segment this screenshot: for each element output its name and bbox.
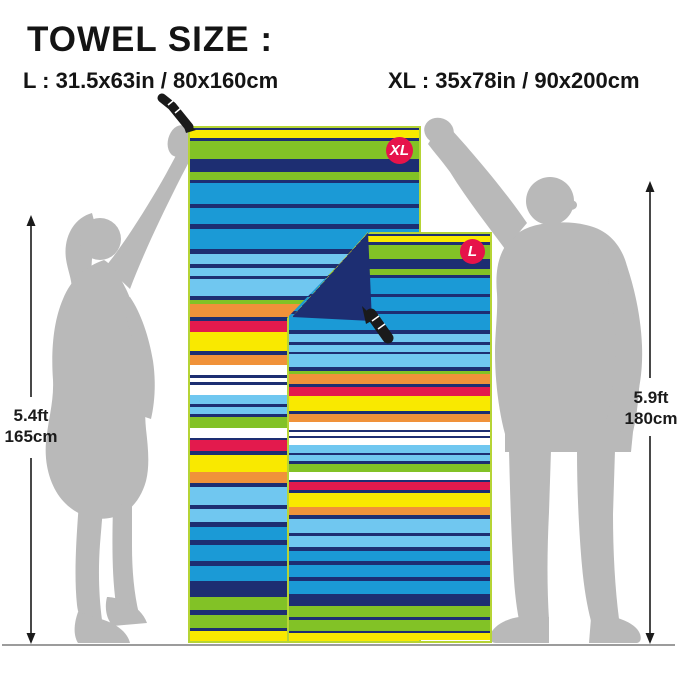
zipper-pull-icon bbox=[362, 306, 388, 338]
height-cm-right: 180cm bbox=[625, 408, 678, 429]
height-cm-left: 165cm bbox=[5, 426, 58, 447]
height-label-left: 5.4ft 165cm bbox=[1, 405, 61, 447]
height-feet-left: 5.4ft bbox=[14, 405, 49, 426]
hanging-strap-icon bbox=[162, 98, 196, 133]
height-label-right: 5.9ft 180cm bbox=[621, 387, 679, 429]
towel-size-infographic: TOWEL SIZE : L : 31.5x63in / 80x160cm XL… bbox=[0, 0, 679, 679]
annotation-overlay bbox=[0, 0, 679, 679]
height-feet-right: 5.9ft bbox=[634, 387, 669, 408]
